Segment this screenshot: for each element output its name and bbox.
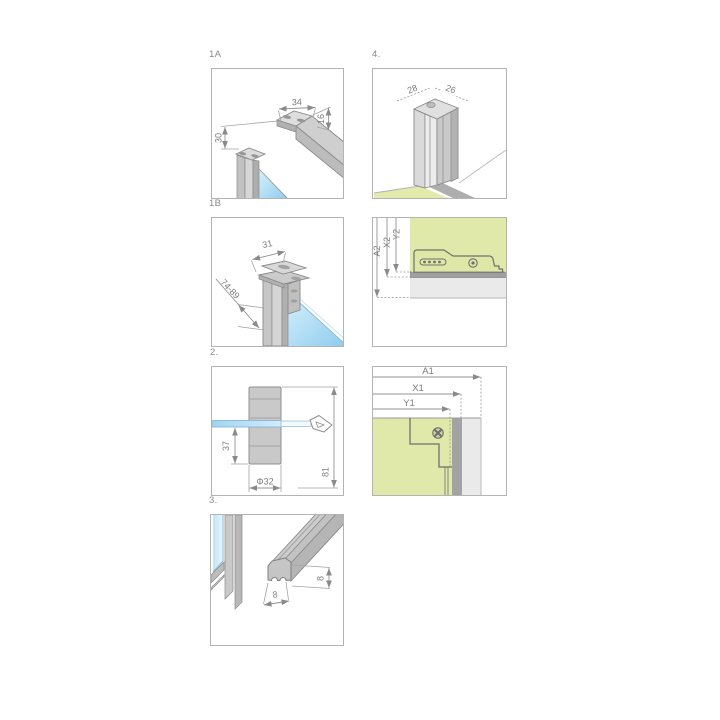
glass-panel: [213, 515, 223, 572]
dim-31-text: 31: [261, 238, 273, 250]
dim-a2-text: A2: [373, 245, 382, 256]
glass-strip: [462, 418, 481, 495]
panel-1b: 31 74-89: [211, 217, 344, 347]
dimension-y2: Y2: [392, 218, 411, 272]
dim-74-89-text: 74-89: [219, 277, 242, 301]
panel-1b-drawing: 31 74-89: [212, 218, 343, 346]
dimension-a1: A1: [373, 367, 481, 418]
dimension-30: 30: [214, 121, 279, 149]
panel-1b-label: 1B: [209, 198, 221, 209]
dimension-74-89: 74-89: [216, 277, 264, 330]
shower-tray-strip: [410, 278, 506, 298]
dim-8-height-text: 8: [316, 576, 326, 581]
panel-a1-drawing: A1 X1 Y1: [373, 367, 506, 495]
dim-16-text: 16: [316, 114, 326, 124]
dim-phi32-text: Φ32: [256, 477, 273, 487]
dimension-37: 37: [221, 428, 248, 464]
dim-30-text: 30: [214, 133, 224, 143]
wall-profile: [236, 148, 289, 198]
panel-3-drawing: 8 8: [211, 515, 343, 645]
panel-1a-drawing: 34 16 30: [212, 69, 343, 198]
panel-4-label: 4.: [372, 49, 381, 60]
corner-profile: [414, 99, 458, 188]
door-edge-assembly: [211, 515, 242, 609]
panel-bottom-rail-heights: A2 X2 Y2: [372, 217, 507, 347]
dimension-26: 26: [435, 82, 468, 101]
seal-strip: [268, 515, 343, 581]
dim-y1-text: Y1: [403, 398, 415, 409]
dim-x2-text: X2: [382, 237, 392, 248]
dim-y2-text: Y2: [392, 229, 402, 240]
dim-34-text: 34: [292, 97, 303, 108]
dimension-8-width: 8: [264, 582, 290, 605]
profile-hole: [427, 103, 435, 108]
dim-8-width-text: 8: [272, 589, 278, 600]
dimension-81: 81: [282, 387, 338, 488]
dim-x1-text: X1: [412, 383, 424, 394]
dim-a1-text: A1: [422, 367, 434, 377]
support-bar: [277, 111, 343, 193]
dimension-x1: X1: [373, 383, 461, 418]
seal-strip-end-face: [268, 558, 291, 581]
panel-3: 8 8: [210, 514, 344, 646]
panel-2-drawing: 37 Φ32 81: [212, 367, 343, 495]
diagram-page: 1A 4. 1B 2. 3.: [0, 0, 720, 720]
panel-a2-drawing: A2 X2 Y2: [373, 218, 506, 346]
panel-2: 37 Φ32 81: [211, 366, 344, 496]
panel-4: 28 26: [372, 68, 507, 199]
panel-1a: 34 16 30: [211, 68, 344, 199]
panel-2-label: 2.: [210, 347, 219, 358]
dimension-phi32: Φ32: [249, 465, 281, 492]
profile-strip: [452, 418, 462, 495]
wall-corner-line: [459, 150, 506, 183]
panel-1a-label: 1A: [209, 49, 221, 60]
dim-81-text: 81: [321, 467, 331, 477]
panel-3-label: 3.: [209, 495, 218, 506]
rail-strip: [410, 272, 506, 278]
panel-4-drawing: 28 26: [373, 69, 506, 198]
dim-37-text: 37: [221, 441, 231, 451]
dimension-28: 28: [397, 82, 430, 101]
panel-wall-profile-offsets: A1 X1 Y1: [372, 366, 507, 496]
